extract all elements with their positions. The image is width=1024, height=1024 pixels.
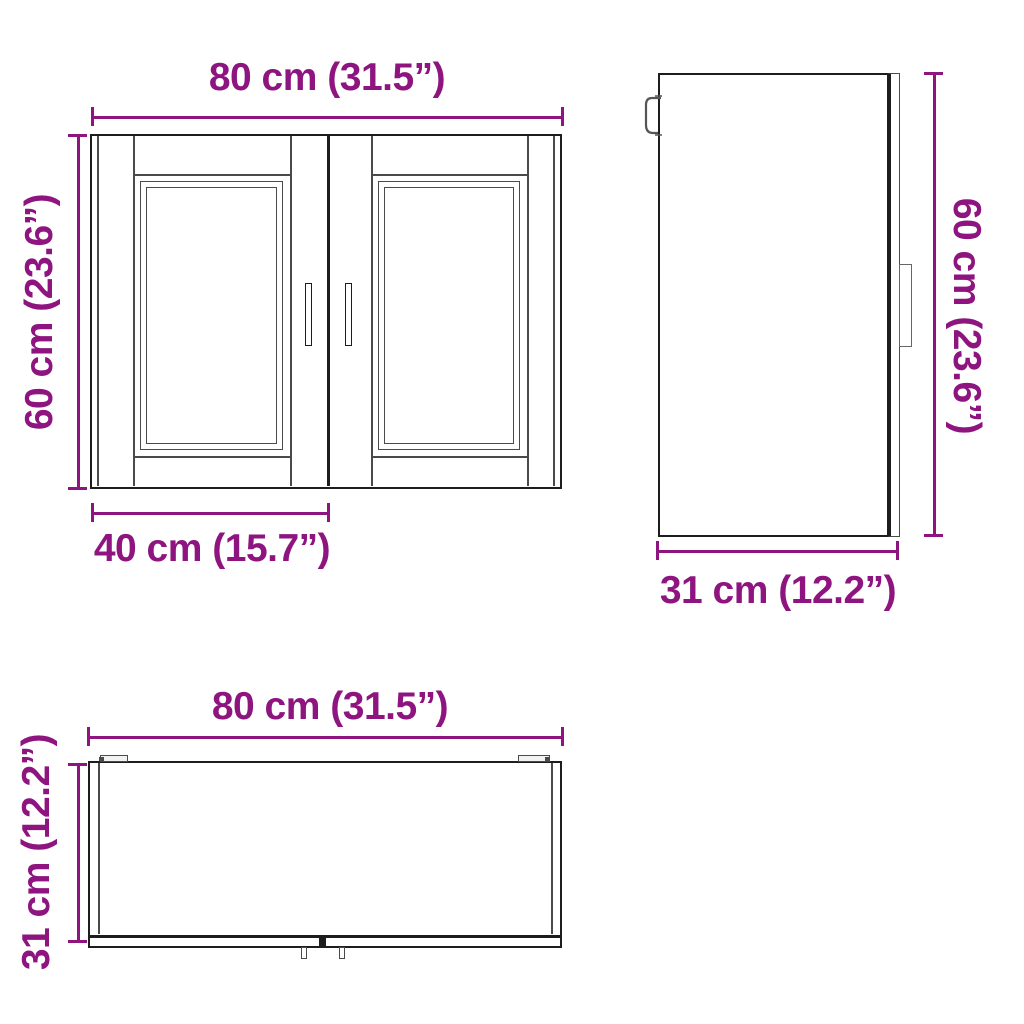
top-right-side-panel-line bbox=[551, 763, 553, 934]
top-door-gap bbox=[319, 938, 326, 946]
top-cabinet-outline bbox=[88, 761, 562, 937]
dimension-line bbox=[77, 764, 80, 942]
dimension-tick bbox=[68, 763, 87, 766]
top-left-side-panel-line bbox=[98, 763, 100, 934]
top-right-door-handle bbox=[339, 947, 345, 959]
dimension-tick bbox=[87, 727, 90, 746]
top-view: 80 cm (31.5”) 31 cm (12.2”) bbox=[0, 0, 1024, 1024]
top-left-door-handle bbox=[301, 947, 307, 959]
dimension-tick bbox=[68, 940, 87, 943]
left-bracket-notch bbox=[99, 757, 104, 761]
dimension-line bbox=[88, 736, 563, 739]
right-bracket-notch bbox=[545, 757, 550, 761]
cabinet-dimension-diagram: 80 cm (31.5”) 60 cm (23.6”) bbox=[0, 0, 1024, 1024]
top-depth-label: 31 cm (12.2”) bbox=[15, 734, 59, 970]
left-mounting-bracket bbox=[100, 755, 128, 762]
dimension-tick bbox=[561, 727, 564, 746]
top-width-label: 80 cm (31.5”) bbox=[212, 685, 448, 729]
